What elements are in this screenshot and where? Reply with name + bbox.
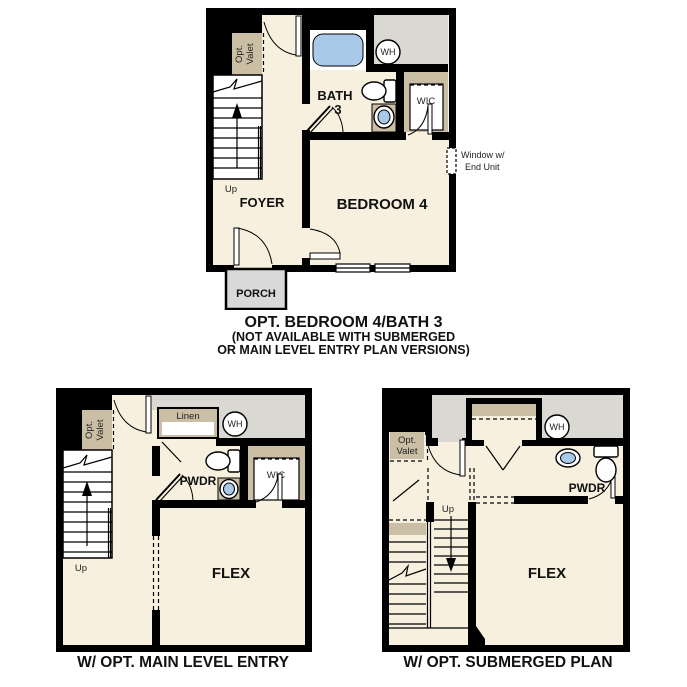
caption-submerged: W/ OPT. SUBMERGED PLAN — [361, 654, 655, 672]
opt-valet-label: Valet — [245, 43, 256, 64]
wic-label: WIC — [267, 470, 286, 481]
flex-label: FLEX — [212, 565, 250, 582]
porch-label: PORCH — [236, 288, 276, 300]
opt-valet-label: Opt. — [398, 435, 416, 446]
toilet — [594, 446, 618, 482]
toilet — [206, 450, 240, 472]
wic-label: WIC — [417, 96, 436, 107]
opt-valet-closet: Opt. Valet — [232, 33, 264, 75]
opt-valet-label: Valet — [95, 419, 106, 440]
wh-label: WH — [550, 422, 565, 432]
bath-label: BATH — [317, 88, 352, 103]
water-heater: WH — [376, 40, 400, 64]
bedroom-label: BEDROOM 4 — [337, 196, 429, 213]
wh-label: WH — [381, 47, 396, 57]
up-label: Up — [225, 184, 237, 195]
walk-in-closet: WIC — [404, 72, 448, 135]
powder-label: PWDR — [180, 474, 217, 488]
staircase-up: Up — [63, 450, 112, 574]
opt-valet-label: Valet — [397, 446, 418, 457]
sink — [556, 449, 580, 467]
wall-block — [389, 395, 432, 435]
floorplan-sheet: Opt. Valet WH — [0, 0, 687, 687]
bath-label: 3 — [334, 102, 341, 117]
walk-in-closet: WIC — [248, 446, 305, 502]
sink — [372, 104, 396, 132]
linen-label: Linen — [176, 411, 199, 422]
powder-label: PWDR — [569, 481, 606, 495]
porch: PORCH — [226, 269, 286, 309]
up-label: Up — [442, 504, 454, 515]
caption-bedroom4: OPT. BEDROOM 4/BATH 3 (NOT AVAILABLE WIT… — [0, 314, 687, 357]
foyer-label: FOYER — [240, 195, 285, 210]
water-heater: WH — [545, 415, 569, 439]
up-label: Up — [75, 563, 87, 574]
floorplan-submerged: Opt. Valet WH — [382, 388, 638, 656]
caption-note: OR MAIN LEVEL ENTRY PLAN VERSIONS) — [0, 344, 687, 357]
floorplan-bedroom4-bath3: Opt. Valet WH — [206, 8, 526, 310]
wh-label: WH — [228, 419, 243, 429]
window-note: End Unit — [465, 162, 500, 172]
toilet — [362, 80, 396, 102]
wall-block — [426, 395, 432, 438]
staircase-up: Up — [213, 75, 262, 195]
window-note: Window w/ — [461, 150, 505, 160]
water-heater: WH — [223, 412, 247, 436]
opt-valet-closet: Opt. Valet — [82, 410, 114, 450]
caption-main-level-entry: W/ OPT. MAIN LEVEL ENTRY — [36, 654, 330, 672]
flex-label: FLEX — [528, 565, 566, 582]
opt-valet-label: Opt. — [234, 45, 245, 63]
sink — [218, 478, 240, 500]
bathtub — [310, 30, 366, 70]
end-unit-window: Window w/ End Unit — [447, 148, 505, 174]
floorplan-main-level-entry: Opt. Valet Linen WH — [56, 388, 312, 656]
caption-title: OPT. BEDROOM 4/BATH 3 — [0, 314, 687, 331]
opt-valet-closet: Opt. Valet — [389, 432, 428, 462]
opt-valet-label: Opt. — [84, 421, 95, 439]
